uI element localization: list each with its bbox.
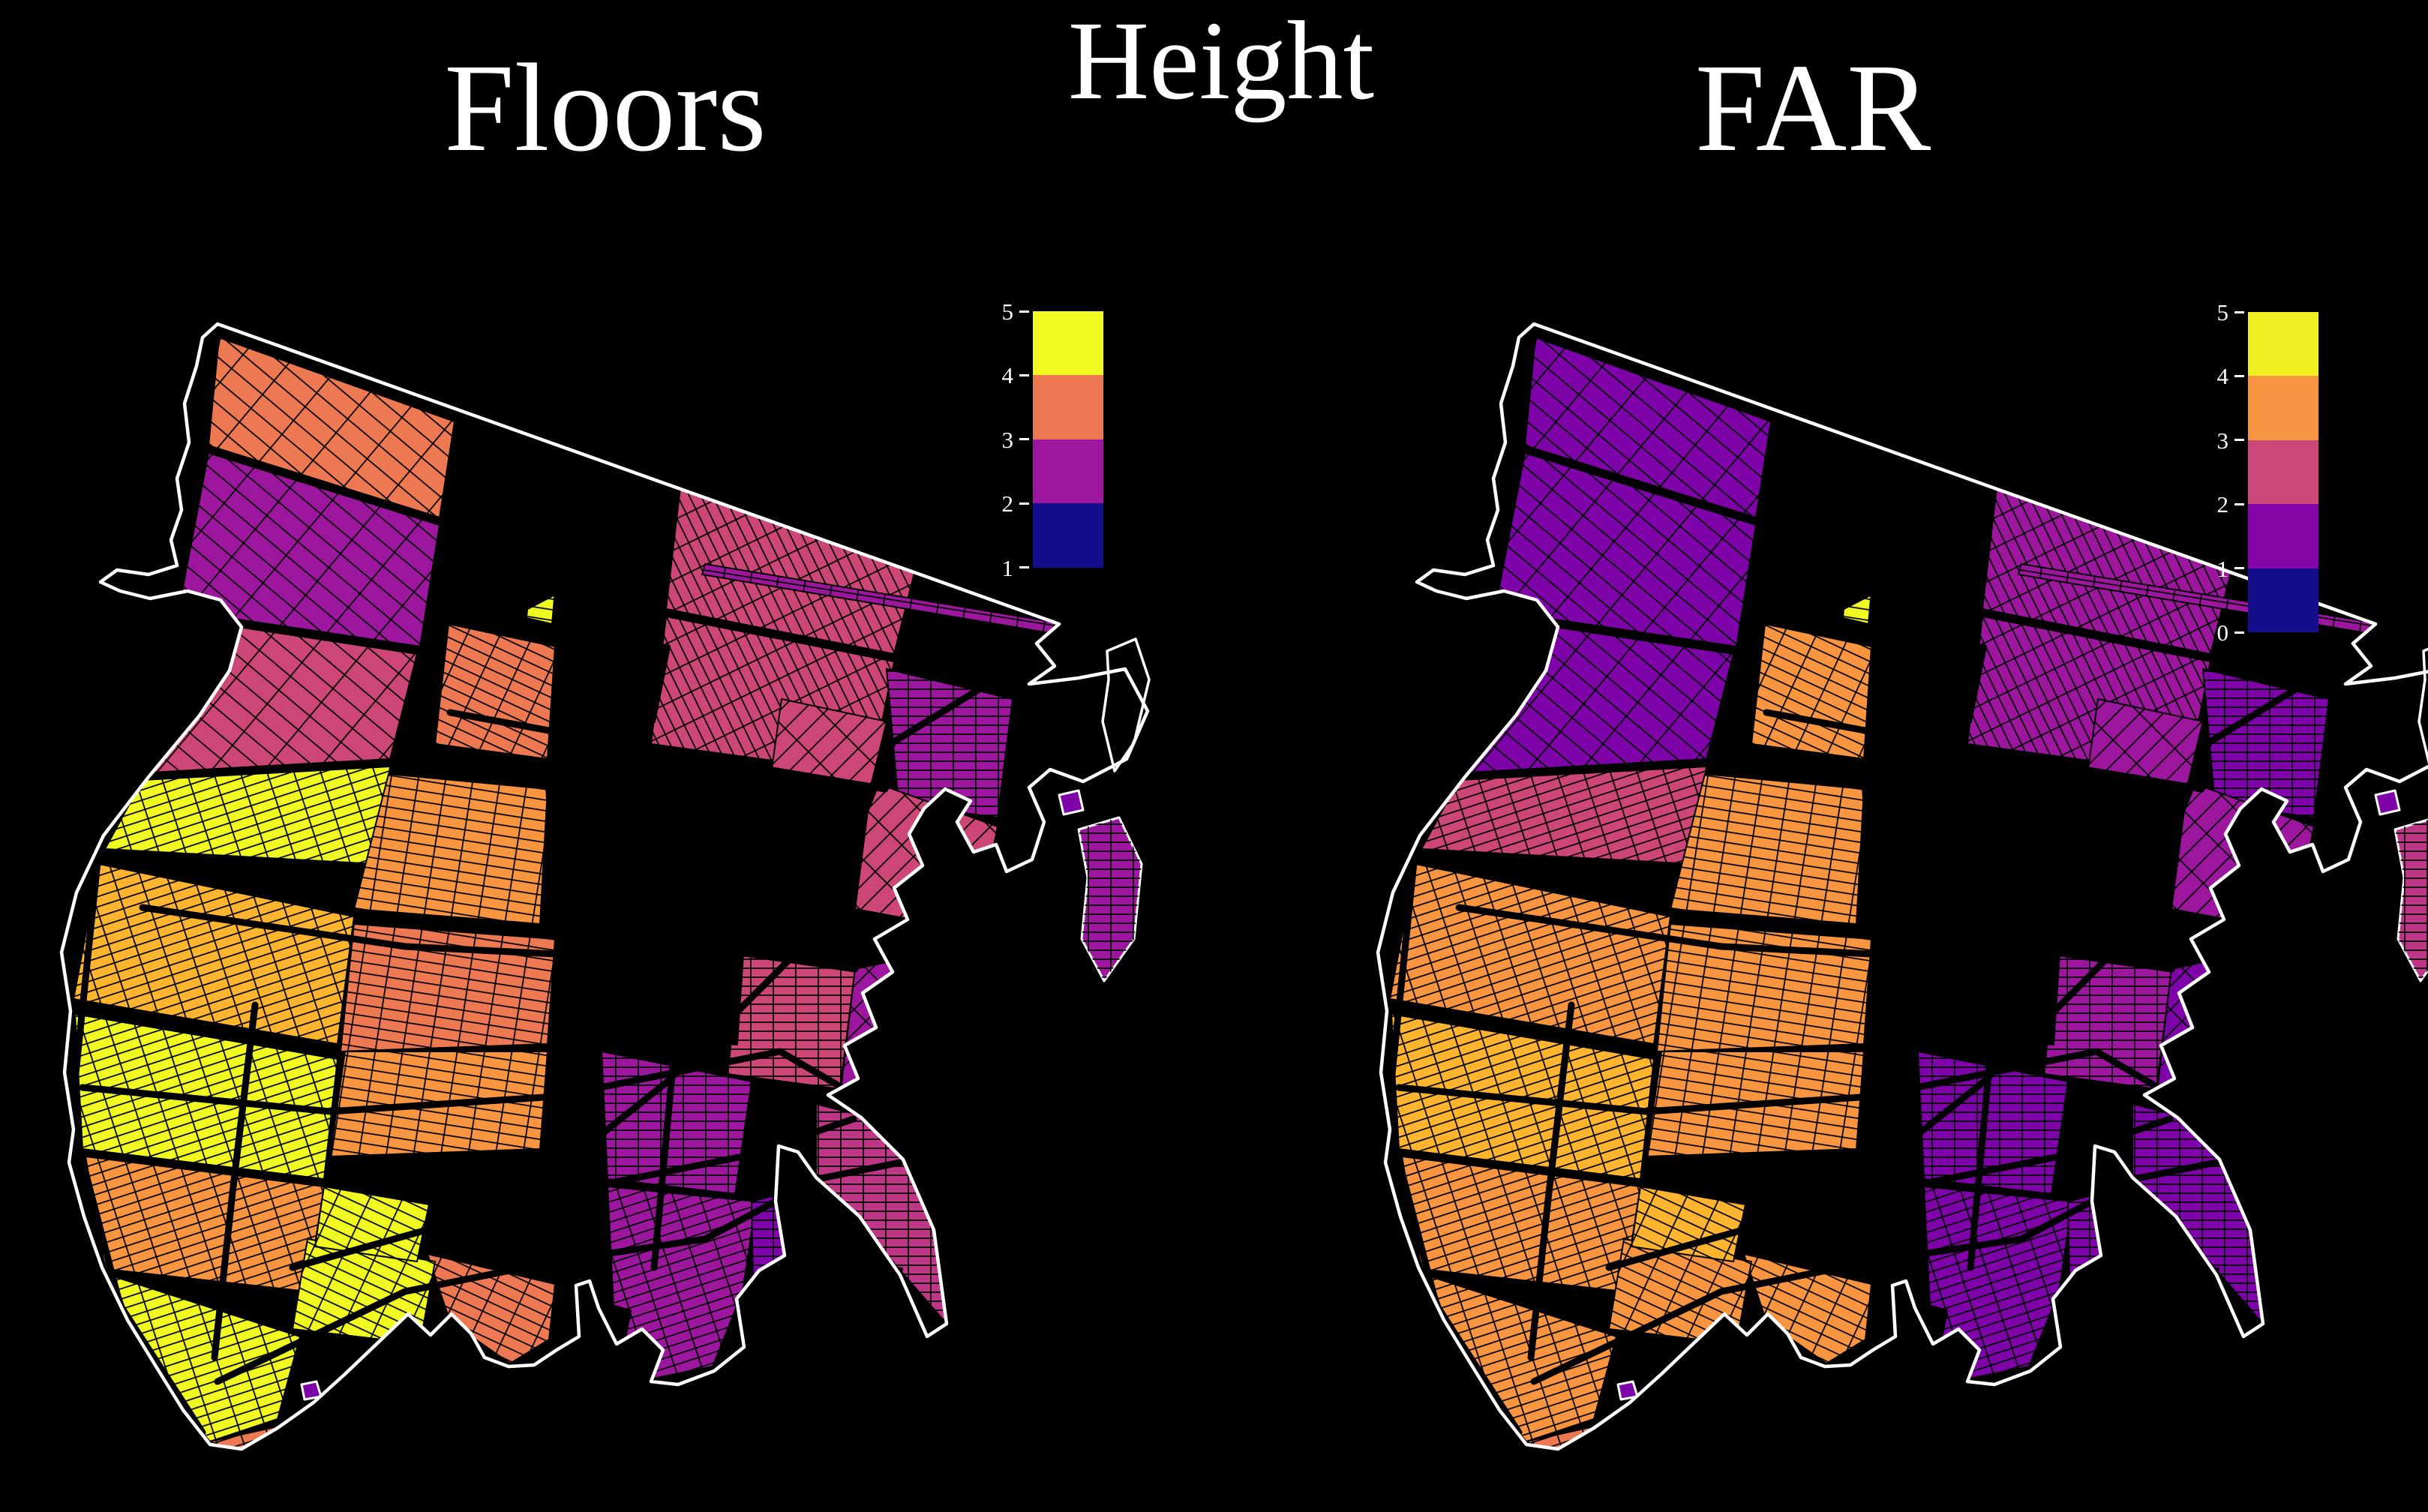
- far-map-title: FAR: [1695, 45, 1931, 171]
- far-colorbar-tickmark-1: [2234, 567, 2244, 569]
- far-grid-kingsbridge: [1421, 766, 1706, 864]
- floors-park-van-cortlandt-park: [447, 388, 669, 618]
- far-colorbar-tickmark-3: [2234, 439, 2244, 441]
- floors-park-ferry-point-park: [797, 1254, 902, 1329]
- far-park-st-marys-park: [1664, 1342, 1730, 1396]
- far-grid-norwood: [1751, 624, 1871, 759]
- far-island-grid-city-island: [2395, 817, 2428, 981]
- far-colorbar-band-4-5: [2248, 312, 2318, 376]
- floors-map-title: Floors: [444, 45, 766, 171]
- floors-colorbar-tick-1: 1: [980, 556, 1013, 580]
- floors-grid-kingsbridge: [105, 766, 390, 864]
- floors-colorbar-tickmark-4: [1019, 374, 1029, 376]
- far-colorbar-tickmark-0: [2234, 631, 2244, 634]
- far-colorbar-band-3-4: [2248, 376, 2318, 439]
- floors-colorbar: 54321: [980, 311, 1103, 568]
- page-title: Height: [1068, 4, 1374, 117]
- floors-grid-bedford-park: [354, 774, 548, 924]
- floors-colorbar-tickmark-5: [1019, 310, 1029, 313]
- floors-colorbar-tick-2: 2: [980, 492, 1013, 515]
- floors-colorbar-band-4-5: [1033, 311, 1103, 375]
- floors-grid-norwood: [435, 624, 555, 759]
- floors-colorbar-band-3-4: [1033, 375, 1103, 439]
- far-colorbar-tickmark-5: [2234, 311, 2244, 313]
- floors-island-islet-north: [1059, 790, 1083, 814]
- floors-grid-morris-park: [728, 954, 855, 1089]
- far-park-van-cortlandt-park: [1763, 388, 1985, 618]
- floors-colorbar-tick-3: 3: [980, 428, 1013, 451]
- floors-park-woodlawn-cemetery: [555, 631, 669, 721]
- floors-colorbar-band-1-2: [1033, 503, 1103, 567]
- floors-colorbar-tick-5: 5: [980, 300, 1013, 323]
- floors-colorbar-tickmark-1: [1019, 566, 1029, 568]
- far-park-ferry-point-park: [2113, 1254, 2218, 1329]
- far-colorbar-tick-1: 1: [2195, 557, 2228, 580]
- far-colorbar-tick-0: 0: [2195, 621, 2228, 644]
- far-colorbar-tick-4: 4: [2195, 364, 2228, 388]
- far-grid-morris-park: [2044, 954, 2171, 1089]
- floors-colorbar-tick-4: 4: [980, 364, 1013, 387]
- far-park-woodlawn-cemetery: [1871, 631, 1985, 721]
- far-colorbar-band-1-2: [2248, 504, 2318, 568]
- far-colorbar-bands: [2248, 312, 2318, 632]
- floors-colorbar-tickmark-2: [1019, 502, 1029, 505]
- far-colorbar-tick-5: 5: [2195, 301, 2228, 324]
- far-colorbar-tickmark-2: [2234, 503, 2244, 505]
- floors-colorbar-band-2-3: [1033, 439, 1103, 503]
- far-colorbar-band-2-3: [2248, 440, 2318, 504]
- far-colorbar-tickmark-4: [2234, 375, 2244, 377]
- far-colorbar: 543210: [2195, 312, 2318, 632]
- far-grid-bedford-park: [1670, 774, 1864, 924]
- far-island-islet-north: [2375, 790, 2399, 814]
- floors-park-st-marys-park: [348, 1342, 414, 1396]
- far-colorbar-tick-3: 3: [2195, 429, 2228, 452]
- floors-colorbar-tickmark-3: [1019, 438, 1029, 440]
- floors-colorbar-bands: [1033, 311, 1103, 568]
- far-colorbar-tick-2: 2: [2195, 493, 2228, 516]
- far-colorbar-band-0-1: [2248, 568, 2318, 632]
